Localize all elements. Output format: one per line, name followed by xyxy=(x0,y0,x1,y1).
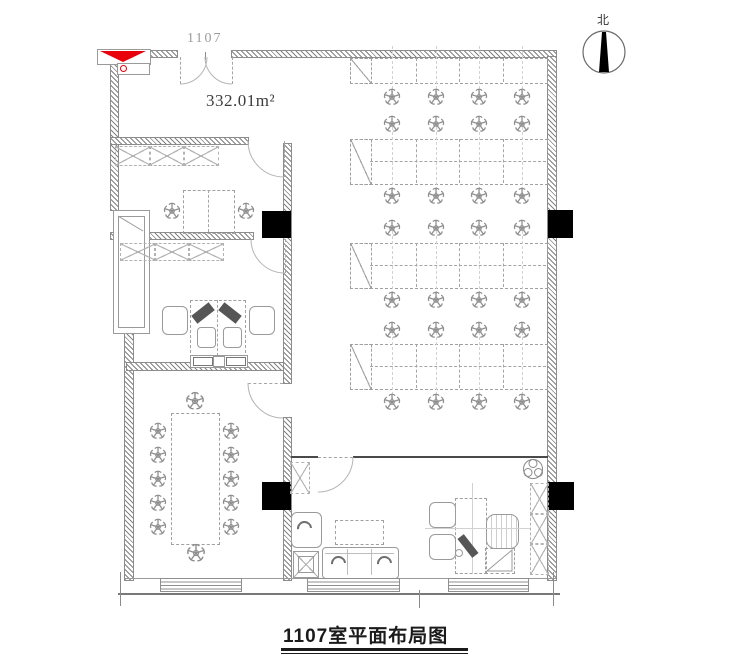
lounge-cabinet xyxy=(290,462,310,494)
office-chair xyxy=(425,217,447,239)
executive-desk xyxy=(455,498,487,574)
office-chair xyxy=(511,319,533,341)
desk-bench xyxy=(350,139,548,185)
desk-bench xyxy=(350,243,548,289)
office-chair xyxy=(381,185,403,207)
door-leaf-meeting xyxy=(248,383,283,384)
desk-bench xyxy=(350,58,548,84)
wall-cabinet-xbox xyxy=(530,483,549,515)
storage-xbox xyxy=(188,243,224,261)
office-chair xyxy=(381,217,403,239)
desk-centerline xyxy=(479,332,480,400)
office-chair xyxy=(425,185,447,207)
wall-top-right xyxy=(232,51,556,57)
office-chair xyxy=(161,200,183,222)
wall-cabinet-xbox xyxy=(530,513,549,545)
bench-end-cabinet xyxy=(350,58,372,84)
room1-desk-divider xyxy=(208,190,209,232)
bench-centerline xyxy=(370,366,546,367)
window-mullion xyxy=(307,578,400,592)
north-label: 北 xyxy=(597,11,609,28)
bench-end-cabinet xyxy=(350,344,372,390)
title-underline-thin xyxy=(281,653,468,654)
office-chair xyxy=(381,113,403,135)
office-chair xyxy=(220,492,242,514)
office-chair xyxy=(425,113,447,135)
office-chair xyxy=(220,468,242,490)
office-chair xyxy=(511,289,533,311)
desk-centerline xyxy=(392,332,393,400)
wall-lounge-top-right xyxy=(353,456,548,458)
entrance-door-leaf-left xyxy=(180,57,181,84)
office-chair xyxy=(511,391,533,413)
office-chair xyxy=(147,468,169,490)
desk-bench xyxy=(350,344,548,390)
dimension-tick xyxy=(120,572,121,606)
column-right-lower xyxy=(548,482,574,510)
office-chair xyxy=(511,86,533,108)
title-underline-thick xyxy=(281,648,468,651)
guest-armchair xyxy=(162,306,188,335)
office-chair xyxy=(511,217,533,239)
door-leaf-room2 xyxy=(285,239,286,273)
window-mullion xyxy=(448,578,529,592)
office-chair xyxy=(468,185,490,207)
wall-left-upper xyxy=(111,63,118,210)
bench-end-cabinet xyxy=(350,139,372,185)
window-mullion xyxy=(160,578,242,592)
bench-divider xyxy=(503,58,504,82)
guest-armchair xyxy=(249,306,275,335)
centerline xyxy=(425,528,530,529)
office-chair xyxy=(425,319,447,341)
office-chair xyxy=(220,420,242,442)
floor-plan-room-1107: 1107 332.01m² 北 1107室平面布局图 xyxy=(0,0,740,672)
office-chair xyxy=(511,185,533,207)
column-left-upper xyxy=(262,211,291,238)
wall-lounge-top-left xyxy=(291,456,318,458)
office-chair xyxy=(235,200,257,222)
office-chair xyxy=(147,516,169,538)
office-chair xyxy=(147,492,169,514)
office-chair xyxy=(381,391,403,413)
guest-armchair xyxy=(429,502,456,528)
room1-desk-pair xyxy=(183,190,235,234)
office-chair xyxy=(381,86,403,108)
entrance-door-meet-tick xyxy=(205,52,206,60)
office-chair xyxy=(468,289,490,311)
executive-chair xyxy=(486,514,519,549)
bench-divider xyxy=(416,58,417,82)
tall-cabinet-inner xyxy=(118,216,145,328)
coffee-table xyxy=(335,520,384,545)
office-chair xyxy=(220,444,242,466)
office-chair xyxy=(468,113,490,135)
office-chair xyxy=(147,420,169,442)
column-right-upper xyxy=(548,210,573,238)
desk-centerline xyxy=(522,332,523,400)
office-chair xyxy=(468,319,490,341)
door-leaf-room1 xyxy=(284,141,285,177)
plan-bottom-line xyxy=(118,593,560,595)
executive-desk-return xyxy=(485,548,515,574)
north-compass-icon xyxy=(583,31,625,73)
office-chair xyxy=(425,86,447,108)
bench-centerline xyxy=(370,161,546,162)
bench-end-cabinet xyxy=(350,243,372,289)
side-table-inner xyxy=(298,556,314,573)
bench-divider xyxy=(459,58,460,82)
storage-xbox xyxy=(183,146,219,166)
plant-icon xyxy=(524,460,543,479)
plan-title: 1107室平面布局图 xyxy=(283,621,448,648)
dimension-tick xyxy=(419,590,420,608)
office-chair xyxy=(183,389,207,413)
storage-xbox xyxy=(149,146,185,166)
office-chair xyxy=(381,319,403,341)
office-chair xyxy=(425,391,447,413)
entrance-room-number: 1107 xyxy=(187,31,222,47)
wall-room1-top xyxy=(111,138,248,144)
wall-cabinet-xbox xyxy=(530,543,549,575)
office-chair xyxy=(381,289,403,311)
office-chair xyxy=(147,444,169,466)
storage-xbox xyxy=(120,243,156,261)
low-cabinet-center xyxy=(213,356,225,367)
low-cabinet-drawer xyxy=(226,357,246,366)
office-chair xyxy=(511,113,533,135)
office-chair xyxy=(184,541,208,565)
office-chair xyxy=(468,217,490,239)
guest-armchair xyxy=(429,534,456,560)
desk-centerline xyxy=(436,332,437,400)
column-left-lower xyxy=(262,482,291,510)
wall-top-left xyxy=(147,51,177,57)
storage-xbox xyxy=(154,243,190,261)
conference-table xyxy=(171,413,220,545)
sofa-seat-divider xyxy=(347,549,348,575)
fire-sign-dot xyxy=(120,65,127,72)
office-chair xyxy=(468,391,490,413)
sofa-back-line xyxy=(325,553,394,554)
sofa-seat-divider xyxy=(371,549,372,575)
bench-centerline xyxy=(370,265,546,266)
office-chair xyxy=(468,86,490,108)
office-chair xyxy=(220,516,242,538)
entrance-door-leaf-right xyxy=(232,57,233,84)
room2-desk-divider xyxy=(217,300,218,356)
area-label: 332.01m² xyxy=(206,91,275,111)
storage-xbox xyxy=(115,146,151,166)
low-cabinet-drawer xyxy=(193,357,213,366)
task-chair xyxy=(197,327,216,348)
task-chair xyxy=(223,327,242,348)
dimension-tick xyxy=(553,572,554,606)
office-chair xyxy=(425,289,447,311)
door-leaf-lounge xyxy=(318,457,353,458)
